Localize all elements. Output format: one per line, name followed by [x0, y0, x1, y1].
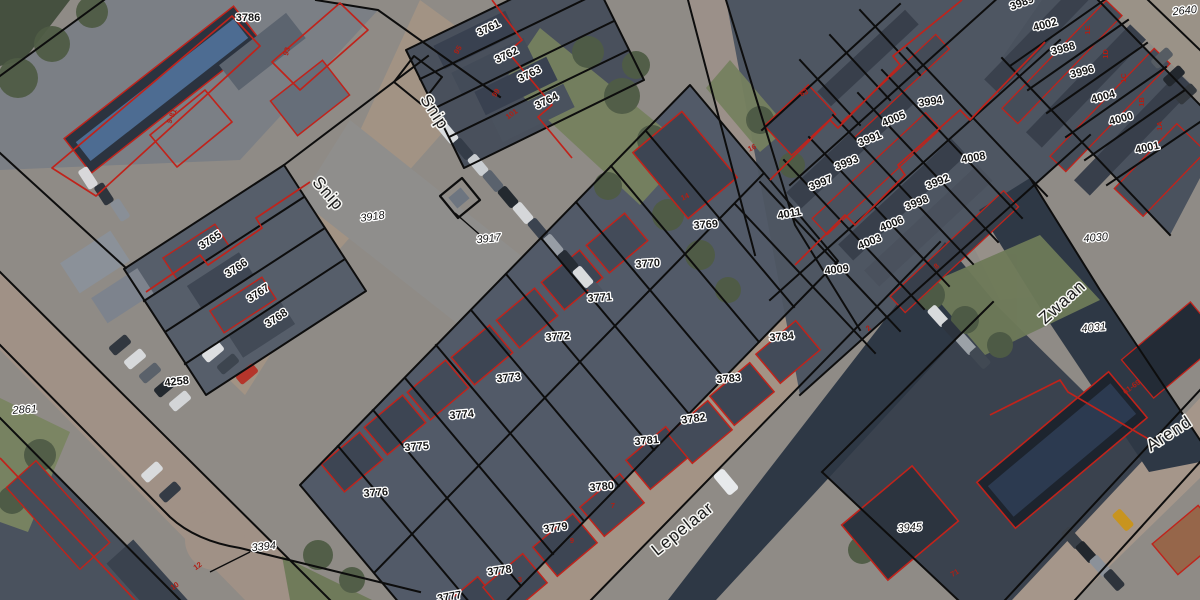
house-number-1e: 1E [1083, 25, 1092, 34]
parcel-label-3770: 3770 [635, 257, 660, 271]
parcel-label-3945: 3945 [897, 521, 923, 535]
parcel-label-3774: 3774 [449, 408, 475, 422]
parcel-label-3776: 3776 [363, 486, 388, 500]
parcel-label-4030: 4030 [1083, 231, 1109, 245]
house-number-3: 3 [518, 575, 522, 584]
house-number-1b: 1B [1137, 97, 1146, 107]
parcel-label-4258: 4258 [164, 375, 190, 389]
parcel-label-3781: 3781 [634, 434, 659, 448]
house-number-1d: 1D [1101, 49, 1110, 59]
parcel-label-3786: 3786 [236, 12, 260, 24]
parcel-label-3783: 3783 [716, 372, 741, 386]
house-number-7: 7 [611, 501, 615, 510]
house-number-1c: 1C [1119, 73, 1128, 83]
parcel-label-3771: 3771 [587, 291, 612, 305]
parcel-label-3772: 3772 [545, 330, 570, 344]
parcel-label-3773: 3773 [496, 371, 522, 385]
parcel-label-4009: 4009 [824, 263, 850, 277]
parcel-label-3775: 3775 [404, 440, 429, 454]
parcel-label-3784: 3784 [769, 330, 795, 344]
map-viewport[interactable]: 939-8195991011416631E1D1C1B1A101239761-6… [0, 0, 1200, 600]
house-number-9: 9 [570, 536, 574, 545]
parcel-label-4031: 4031 [1081, 321, 1106, 335]
cadastral-map-canvas: 939-8195991011416631E1D1C1B1A101239761-6… [0, 0, 1200, 600]
parcel-label-3780: 3780 [589, 480, 614, 494]
parcel-label-2861: 2861 [11, 403, 37, 417]
parcel-label-3394: 3394 [251, 540, 277, 554]
house-number-1a: 1A [1155, 121, 1164, 131]
parcel-label-3769: 3769 [693, 218, 718, 232]
